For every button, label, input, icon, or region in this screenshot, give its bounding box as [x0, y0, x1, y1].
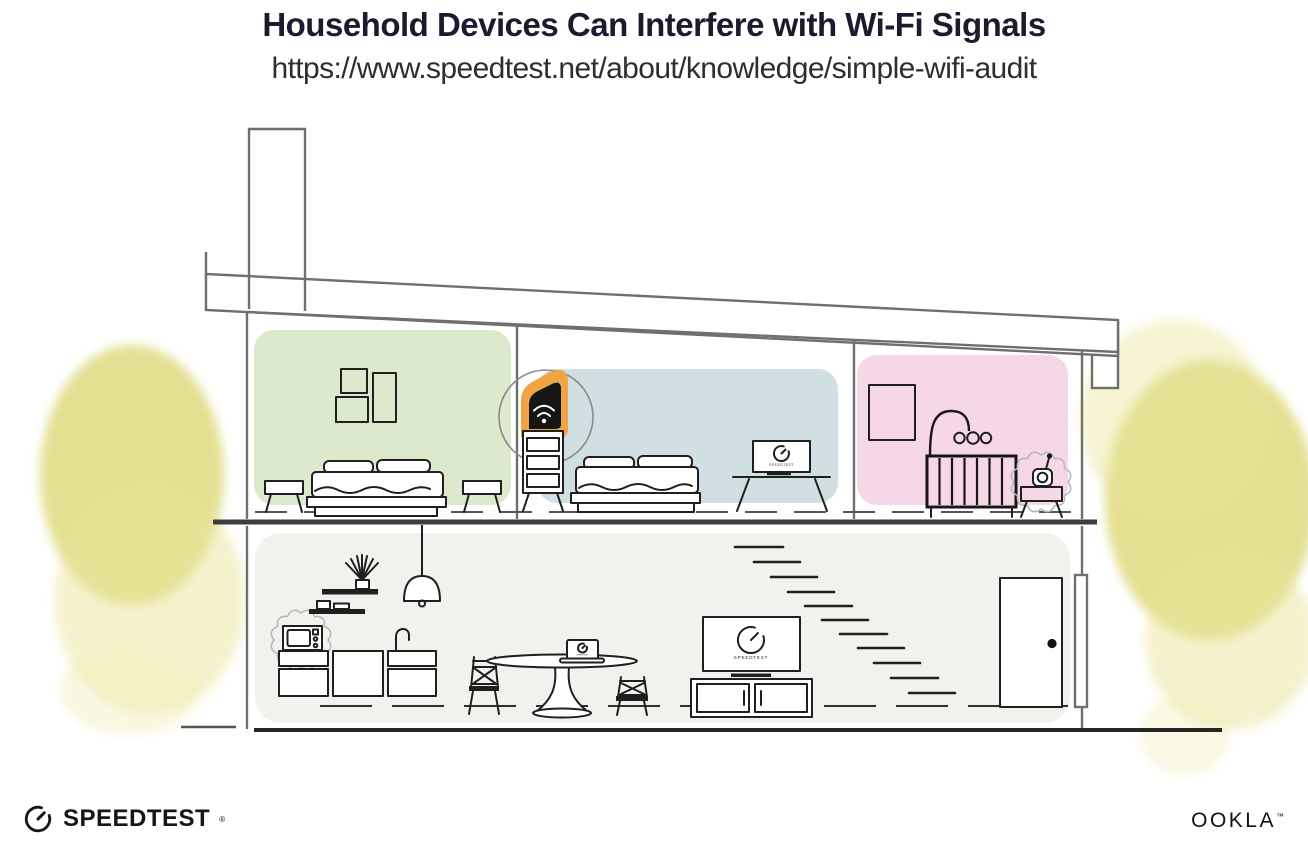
living-tv: SPEEDTEST — [703, 617, 800, 677]
counter-cabinets — [279, 651, 436, 696]
bed — [307, 460, 446, 516]
door-knob — [1047, 639, 1056, 648]
plant-pot — [356, 580, 369, 589]
trademark-symbol: ® — [219, 815, 225, 824]
cup — [317, 601, 330, 609]
bowl — [334, 604, 349, 610]
ookla-wordmark: OOKLA — [1191, 809, 1276, 832]
door — [1000, 578, 1062, 707]
microwave — [283, 626, 322, 650]
living-tv-text: SPEEDTEST — [734, 655, 769, 660]
ookla-logo: OOKLA™ — [1191, 809, 1284, 833]
speedtest-wordmark: SPEEDTEST — [63, 805, 210, 833]
speedtest-logo: SPEEDTEST® — [22, 803, 225, 835]
trademark-symbol: ™ — [1276, 812, 1284, 821]
speedometer-icon — [22, 803, 54, 835]
house-cross-section-illustration: SPEEDTEST — [0, 0, 1308, 861]
downspout — [1075, 575, 1087, 707]
infographic-page: Household Devices Can Interfere with Wi-… — [0, 0, 1308, 861]
foliage-left — [40, 345, 245, 735]
laptop: SPEEDTEST — [560, 640, 604, 663]
laptop-text: SPEEDTEST — [577, 655, 590, 657]
media-console — [691, 679, 812, 717]
bedroom-tv-text: SPEEDTEST — [769, 463, 794, 467]
